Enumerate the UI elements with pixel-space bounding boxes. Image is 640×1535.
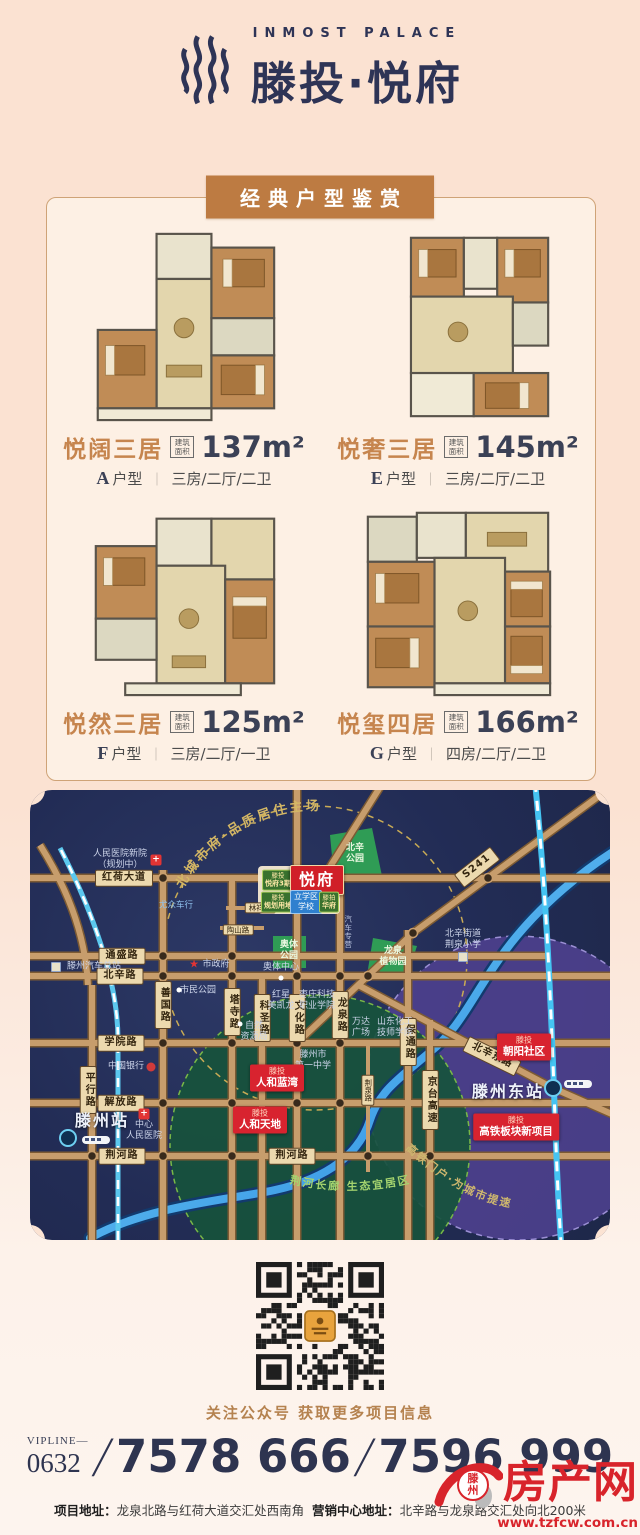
floorplan-drawing-a <box>85 228 283 424</box>
map-label: 荆河路 <box>269 1148 316 1165</box>
map-label: 中国银行 <box>108 1061 144 1072</box>
sales-center-label: 营销中心地址： <box>312 1503 400 1518</box>
dot-icon <box>279 976 284 981</box>
map-label: 人民医院新院 （规划中） <box>93 849 147 872</box>
floorplan-card-a: 悦阔三居建筑面积137m² A户型｜三房/二厅/二卫 <box>47 228 321 489</box>
map-label: 京台高速 <box>422 1070 439 1130</box>
svg-text:滕: 滕 <box>468 1471 480 1485</box>
map-label: 滕州汽车总站 <box>67 961 121 972</box>
floorplan-grid: 悦阔三居建筑面积137m² A户型｜三房/二厅/二卫 <box>47 228 595 764</box>
map-label: 滕州东站 <box>472 1082 544 1102</box>
project-address-label: 项目地址： <box>54 1503 117 1518</box>
map-label: 市政府 <box>202 959 229 970</box>
map-label: S241 <box>454 846 500 887</box>
floorplan-drawing-g <box>359 503 557 699</box>
area-badge: 建筑面积 <box>444 711 468 734</box>
map-label: 荆河路 <box>99 1148 146 1165</box>
floorplan-drawing-f <box>85 503 283 699</box>
poster: INMOST PALACE 滕投·悦府 经典户型鉴赏 <box>0 0 640 1535</box>
map-labels: 红荷大道通盛路北辛路学院路解放路荆河路荆河路平行路善国路塔寺路科圣路文化路龙泉路… <box>30 790 610 1240</box>
unit-spec: G户型｜四房/二厅/二卫 <box>370 743 546 764</box>
phone-number-1: 7578 666 <box>116 1437 351 1478</box>
cross-icon: + <box>139 1109 150 1120</box>
map-label: 红荷大道 <box>95 870 153 887</box>
map-label: 滕投人和蓝湾 <box>250 1064 304 1091</box>
map-label: 中心 人民医院 <box>126 1120 162 1143</box>
map-label: 自然 资源局 <box>240 1021 267 1044</box>
watermark-logo-icon: 滕 州 <box>433 1452 503 1514</box>
header: INMOST PALACE 滕投·悦府 <box>0 26 640 112</box>
map-label: 奥体中心 <box>263 962 299 973</box>
unit-name: 悦玺四居 <box>337 705 437 739</box>
map-label: 汽车专营 <box>343 915 352 949</box>
slash: / <box>90 1436 114 1477</box>
brand-name-en: INMOST PALACE <box>253 26 462 41</box>
map-label: 学院路 <box>98 1035 145 1052</box>
section-banner: 经典户型鉴赏 <box>206 176 434 219</box>
map-label: 山东化工 技师学院 <box>377 1017 413 1040</box>
unit-name: 悦阔三居 <box>63 430 163 464</box>
area-badge: 建筑面积 <box>444 436 468 459</box>
map-label: 塔寺路 <box>224 988 241 1036</box>
map-label: 立学区 学校 <box>290 890 322 914</box>
site-watermark: 滕 州 房产网 www.tzfcw.com.cn <box>403 1452 638 1531</box>
unit-spec: E户型｜三房/二厅/二卫 <box>371 468 545 489</box>
area-badge: 建筑面积 <box>170 711 194 734</box>
map-label: 滕投朝阳社区 <box>497 1033 551 1060</box>
unit-area: 125m² <box>201 705 304 739</box>
unit-area: 145m² <box>475 430 578 464</box>
watermark-url: www.tzfcw.com.cn <box>403 1515 638 1531</box>
brand-name-cn: 滕投·悦府 <box>251 47 463 112</box>
unit-spec: F户型｜三房/二厅/一卫 <box>97 743 270 764</box>
map-label: 龙泉 植物园 <box>379 946 406 969</box>
map-label: 北辛街道 荆泉小学 <box>445 929 481 952</box>
slash: / <box>352 1436 376 1477</box>
sq-icon <box>51 962 61 972</box>
bank-icon <box>147 1063 156 1072</box>
sq-icon <box>458 952 468 962</box>
qr-caption: 关注公众号 获取更多项目信息 <box>0 1402 640 1423</box>
area-code: 0632 <box>27 1450 81 1477</box>
map-label: 荆泉路 <box>361 1075 374 1106</box>
map-label: 善国路 <box>155 981 172 1029</box>
project-address: 龙泉北路与红荷大道交汇处西南角 <box>117 1503 305 1518</box>
map-label: 尤众车行 <box>159 901 193 912</box>
vipline-label: VIPLINE— <box>27 1436 89 1447</box>
cross-icon: + <box>151 855 162 866</box>
unit-area: 137m² <box>201 430 304 464</box>
map-label: 奥体 公园 <box>280 940 298 963</box>
watermark-site-name: 房产网 <box>503 1461 638 1505</box>
map-label: 万达 广场 <box>352 1017 370 1040</box>
unit-spec: A户型｜三房/二厅/二卫 <box>96 468 271 489</box>
floorplan-drawing-e <box>359 228 557 424</box>
floorplan-card-f: 悦然三居建筑面积125m² F户型｜三房/二厅/一卫 <box>47 503 321 764</box>
qr-code <box>256 1262 384 1394</box>
map-label: 平行路 <box>80 1066 97 1114</box>
star-icon: ★ <box>189 959 199 970</box>
map-label: 红星 美凯龙 <box>267 990 294 1013</box>
map-label: 解放路 <box>98 1095 145 1112</box>
unit-area: 166m² <box>475 705 578 739</box>
map-label: 陶山路 <box>223 924 254 935</box>
map-label: 市民公园 <box>180 985 216 996</box>
map-label: 滕州站 <box>75 1111 129 1131</box>
area-badge: 建筑面积 <box>170 436 194 459</box>
floorplan-panel: 悦阔三居建筑面积137m² A户型｜三房/二厅/二卫 <box>46 197 596 781</box>
floorplan-card-e: 悦奢三居建筑面积145m² E户型｜三房/二厅/二卫 <box>321 228 595 489</box>
map-label: 枣庄科技 职业学院 <box>299 990 335 1013</box>
unit-name: 悦然三居 <box>63 705 163 739</box>
map-label: 滕拍华府 <box>319 892 339 913</box>
map-label: 滕投高铁板块新项目 <box>473 1113 559 1140</box>
svg-text:州: 州 <box>467 1484 479 1497</box>
location-map: 北城市府·品质居住主场 荆河长廊 生态宜居区 高铁门户·为城市提速 红荷大道通盛… <box>30 790 610 1240</box>
map-label: 滕投人和天地 <box>233 1106 287 1133</box>
brand-logo-icon <box>177 33 233 105</box>
map-label: 北辛 公园 <box>346 843 364 866</box>
floorplan-card-g: 悦玺四居建筑面积166m² G户型｜四房/二厅/二卫 <box>321 503 595 764</box>
unit-name: 悦奢三居 <box>337 430 437 464</box>
